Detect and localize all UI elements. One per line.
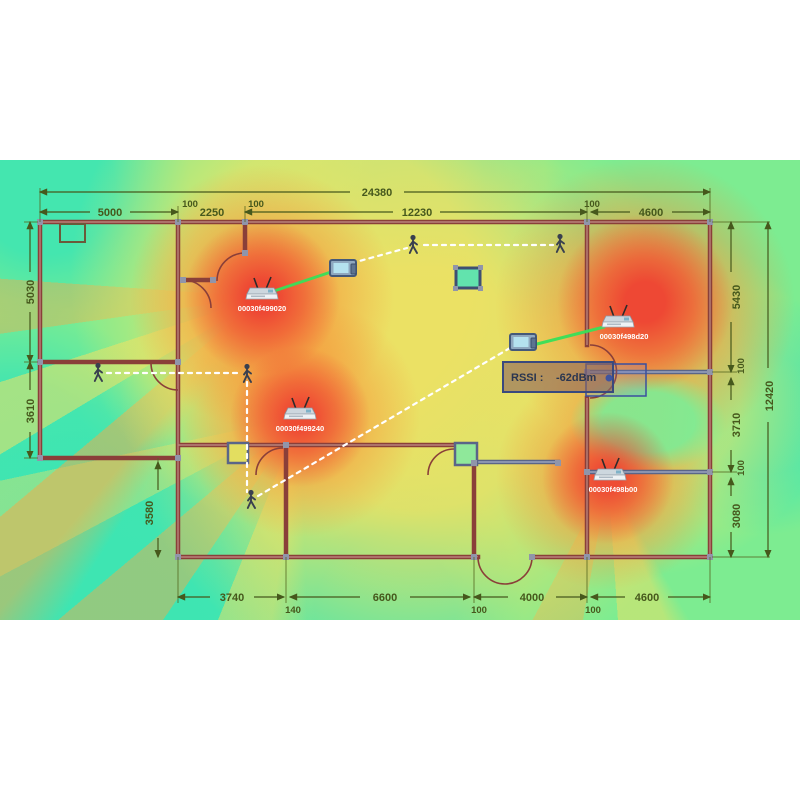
dim-label: 4600 [635, 592, 659, 604]
walker-icon[interactable] [244, 364, 251, 382]
dim-label: 100 [584, 199, 600, 210]
building-walls [37, 219, 713, 584]
dim-label: 5430 [731, 285, 743, 309]
active-link-line [537, 327, 604, 344]
access-point-icon[interactable] [594, 458, 626, 480]
active-link-line [271, 272, 331, 292]
dim-label: 2250 [200, 207, 224, 219]
entry-door-arc-left [478, 557, 505, 584]
dim-label: 5030 [25, 280, 37, 304]
dimension-annotations: 24380 5000 100 2250 100 12230 100 4600 5… [25, 187, 776, 616]
dim-label: 100 [248, 199, 264, 210]
door-arc [256, 448, 283, 475]
dim-label: 6600 [373, 592, 397, 604]
walker-icon[interactable] [410, 235, 417, 253]
coverage-heatmap: 24380 5000 100 2250 100 12230 100 4600 5… [0, 160, 800, 620]
dim-label: 3580 [144, 501, 156, 525]
dim-label: 12420 [764, 381, 776, 412]
dim-label: 24380 [362, 187, 393, 199]
tooltip-anchor-dot [606, 375, 613, 382]
dim-label: 4000 [520, 592, 544, 604]
dim-label: 100 [585, 605, 601, 616]
dim-label: 5000 [98, 207, 122, 219]
walker-icon[interactable] [95, 363, 102, 381]
laptop-icon[interactable] [510, 334, 536, 350]
walker-icon[interactable] [248, 490, 255, 508]
dim-label: 3710 [731, 413, 743, 437]
access-point-label: 00030f498b00 [589, 485, 638, 494]
access-point-label: 00030f499020 [238, 304, 286, 313]
dim-label: 3740 [220, 592, 244, 604]
entry-door-arc-right [505, 557, 532, 584]
dim-label: 100 [471, 605, 487, 616]
dim-label: 12230 [402, 207, 433, 219]
tooltip-label: RSSI : [511, 372, 543, 384]
access-point-label: 00030f499240 [276, 424, 324, 433]
door-post [228, 443, 248, 463]
walker-icon[interactable] [557, 234, 564, 252]
table-object[interactable] [453, 265, 483, 291]
access-point-label: 00030f498d20 [600, 332, 649, 341]
door-arc [151, 363, 178, 390]
floorplan-canvas: 24380 5000 100 2250 100 12230 100 4600 5… [0, 160, 800, 620]
walk-path-dashed [352, 248, 407, 263]
rssi-tooltip: RSSI : -62dBm [503, 362, 646, 396]
window-notch [60, 224, 85, 242]
dim-label: 100 [736, 460, 747, 476]
door-arc [217, 253, 245, 281]
laptop-icon[interactable] [330, 260, 356, 276]
access-point-icon[interactable] [246, 277, 278, 299]
access-point-icon[interactable] [602, 305, 634, 327]
tooltip-value: -62dBm [556, 372, 597, 384]
dim-label: 4600 [639, 207, 663, 219]
door-arc [428, 449, 454, 475]
dim-label: 3080 [731, 504, 743, 528]
access-point-icon[interactable] [284, 397, 316, 419]
dim-label: 3610 [25, 399, 37, 423]
dim-label: 100 [736, 358, 747, 374]
dim-label: 140 [285, 605, 301, 616]
door-arc [183, 280, 211, 308]
dim-label: 100 [182, 199, 198, 210]
